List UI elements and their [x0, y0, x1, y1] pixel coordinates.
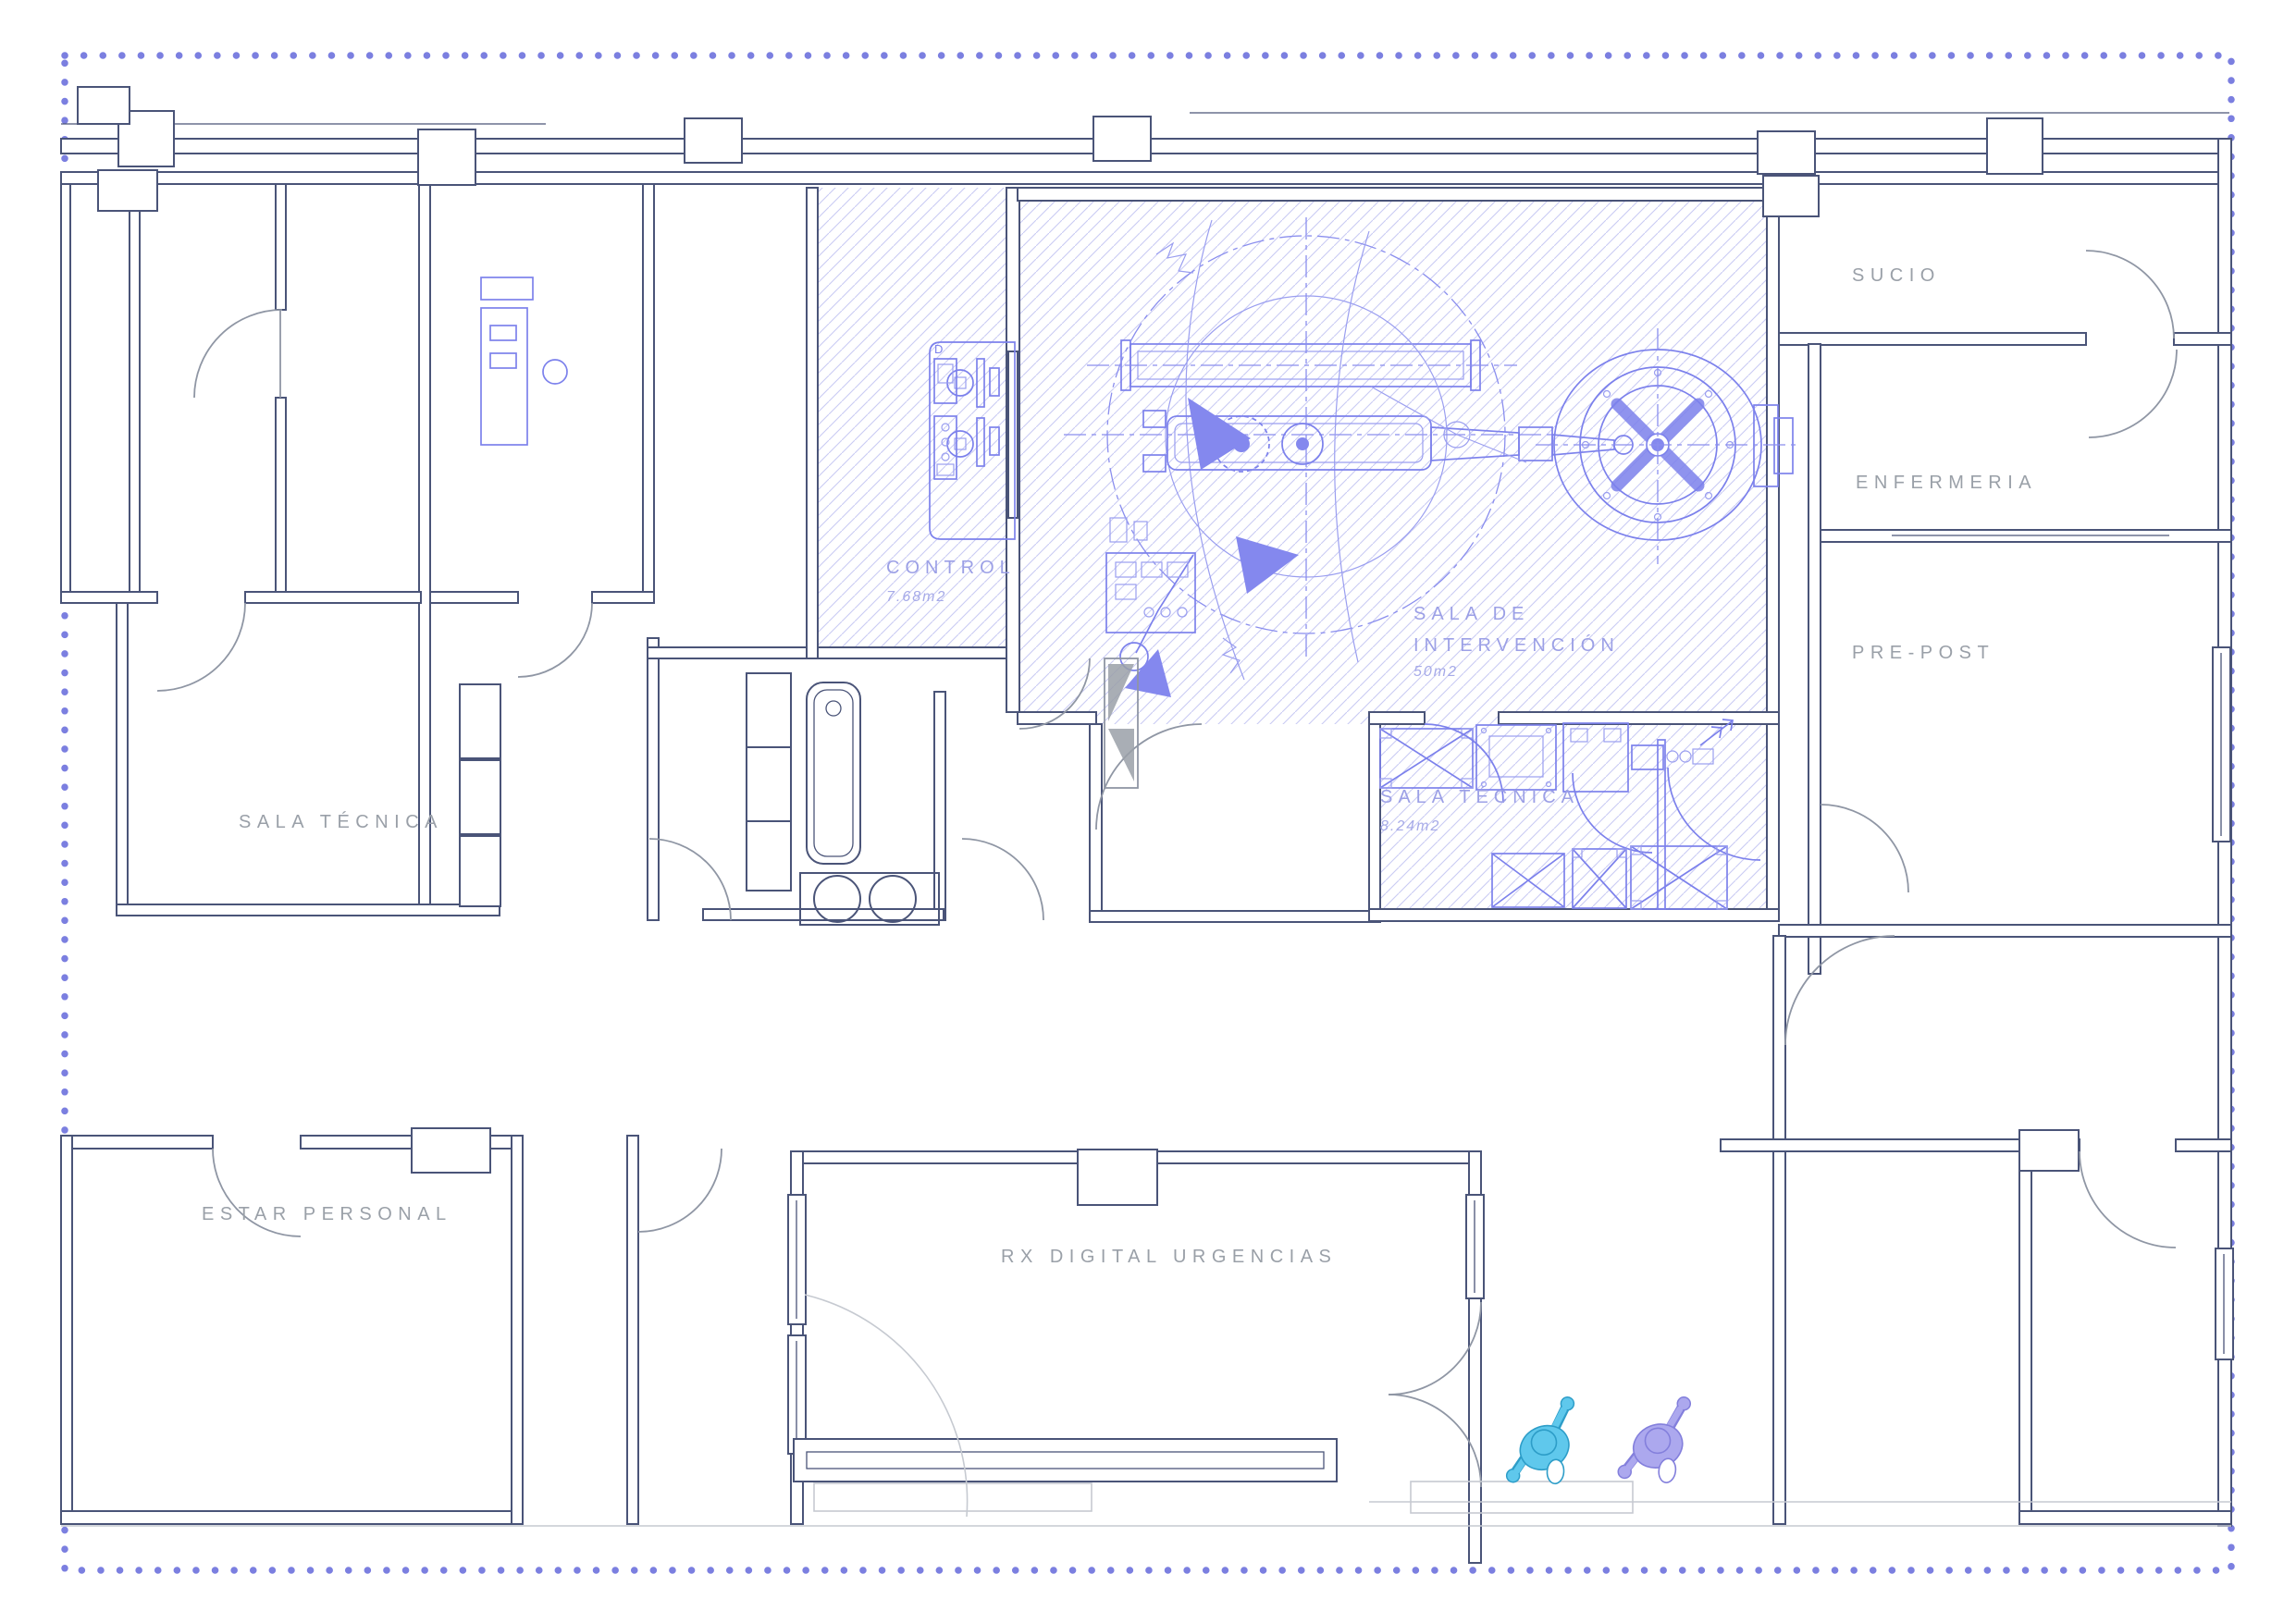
label-intervencion-line1: SALA DE [1413, 604, 1529, 624]
label-intervencion-area: 50m2 [1413, 664, 1458, 680]
label-intervencion-line2: INTERVENCIÓN [1413, 634, 1620, 656]
label-sala-tecnica-left: SALA TÉCNICA [239, 811, 443, 832]
label-control: CONTROL [886, 558, 1016, 578]
label-sala-tecnica-equip: SALA TÉCNICA [1380, 786, 1579, 807]
label-sucio: SUCIO [1852, 265, 1941, 286]
label-estar-personal: ESTAR PERSONAL [202, 1204, 452, 1224]
bathtub [807, 682, 860, 864]
bathroom-fixtures [747, 673, 939, 925]
person-purple [1613, 1396, 1696, 1487]
monitor-icon [490, 353, 516, 368]
label-enfermeria: ENFERMERIA [1856, 473, 2037, 493]
label-control-area: 7.68m2 [886, 589, 946, 605]
office-workstation [481, 277, 567, 445]
rack-tag: D [934, 342, 943, 356]
bathtub-drain [826, 701, 841, 716]
floorplan-canvas: D [0, 0, 2296, 1623]
floorplan-sheet: D [0, 0, 2296, 1623]
label-pre-post: PRE-POST [1852, 643, 1994, 663]
monitor-icon [490, 326, 516, 340]
head [1645, 1427, 1672, 1454]
label-rx-digital: RX DIGITAL URGENCIAS [1001, 1247, 1337, 1267]
chair-icon [543, 360, 567, 384]
label-sala-tecnica-equip-area: 8.24m2 [1380, 818, 1440, 834]
person-cyan [1497, 1396, 1585, 1492]
